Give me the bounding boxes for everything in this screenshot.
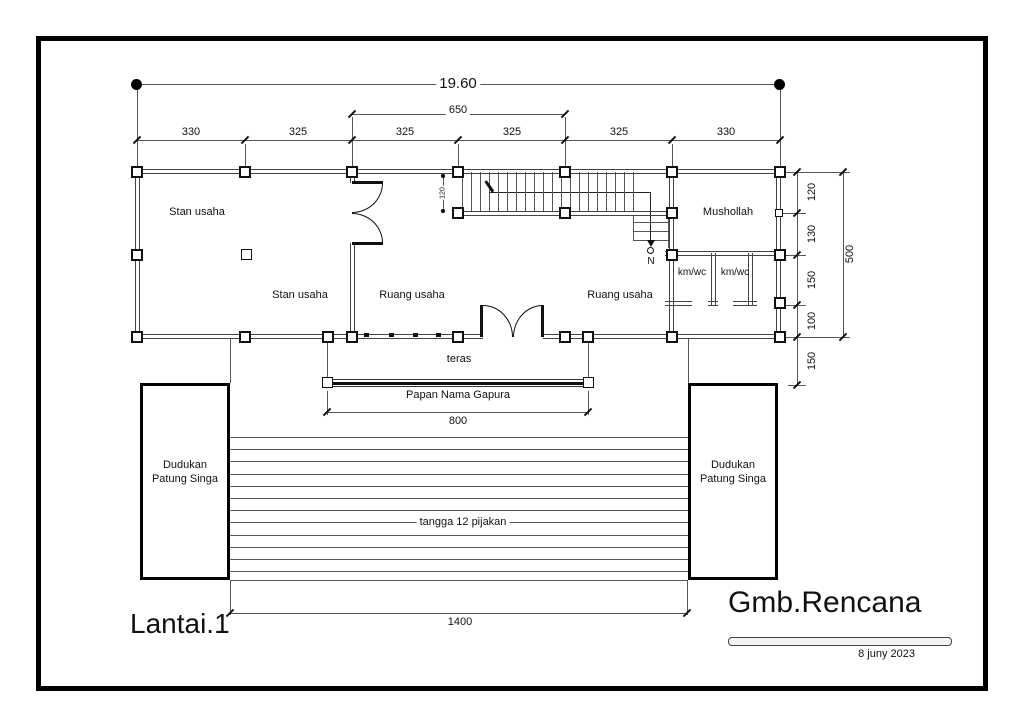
stair-tread-line [230,449,688,450]
dim-label-papan-width: 800 [449,415,467,427]
wall-stub [413,333,418,337]
extension-line [780,85,781,169]
stair-tread-line [230,559,688,560]
column [774,297,786,309]
papan-nama-bar [327,379,588,387]
column [131,249,143,261]
dim-label-right-total: 500 [844,243,856,265]
dim-endpoint-dot [441,209,445,213]
dim-label-650: 650 [446,104,470,116]
door-leaf [352,242,383,245]
room-label-teras: teras [447,353,471,365]
stair-direction-ring [647,247,654,254]
door-leaf [480,305,483,337]
wall-segment [350,243,355,339]
room-label-kmwc: km/wc [721,267,749,278]
dudukan-label-line2: Patung Singa [688,472,778,486]
stair-tread-line [230,580,688,581]
stair-tread-line [552,172,553,211]
dim-label-right: 150 [806,269,818,291]
column [346,166,358,178]
dim-label-segment: 325 [503,126,521,138]
column [346,331,358,343]
wall-segment [733,301,757,306]
floor-label: Lantai.1 [130,608,230,640]
column [774,249,786,261]
wall-stub [364,333,369,337]
stair-tread-line [230,474,688,475]
stair-tread-line [534,172,535,211]
dim-label-overall-width: 19.60 [436,75,480,92]
dim-label-segment: 325 [610,126,628,138]
teras-edge-line [327,339,328,379]
stair-tread-line [230,571,688,572]
wall-segment [137,334,483,339]
papan-post [583,377,594,388]
dim-label-right: 150 [806,350,818,372]
dim-line-1400 [230,613,687,614]
stair-travel-line [650,192,651,240]
dudukan-label-line2: Patung Singa [140,472,230,486]
stair-tread-line [230,461,688,462]
column [666,207,678,219]
wall-stub [436,333,441,337]
column [241,249,252,260]
drawing-date: 8 juny 2023 [760,648,915,660]
dim-endpoint-dot [774,79,785,90]
stair-step-line [633,215,634,240]
room-label-stan-usaha: Stan usaha [169,206,225,218]
column [559,331,571,343]
dim-label-bottom-stairs: 1400 [448,616,472,628]
column [559,166,571,178]
column [239,331,251,343]
stair-tread-line [543,172,544,211]
column [774,331,786,343]
door-leaf [541,305,544,337]
stair-tread-line [480,172,481,211]
room-label-kmwc: km/wc [678,267,706,278]
column [582,331,594,343]
wall-segment [665,251,780,256]
stair-tread-line [498,172,499,211]
dudukan-label-right: Dudukan Patung Singa [688,458,778,486]
wall-segment [748,253,753,305]
extension-line [352,117,353,170]
dim-label-segment: 325 [396,126,414,138]
wall-segment [543,334,780,339]
dim-line-800 [327,412,588,413]
teras-edge-line [230,339,231,383]
column [131,166,143,178]
stair-tread-line [633,172,634,211]
dim-endpoint-dot [131,79,142,90]
wall-segment [665,301,692,306]
column [559,207,571,219]
title-underline-bar [728,637,952,646]
dim-label-right: 130 [806,223,818,245]
dim-label-right: 120 [806,181,818,203]
room-label-stan-usaha: Stan usaha [272,289,328,301]
window-marker [775,209,783,217]
stair-tread-line [230,535,688,536]
stair-tread-line [615,172,616,211]
wall-stub [389,333,394,337]
drawing-title: Gmb.Rencana [728,586,921,620]
papan-post [322,377,333,388]
stair-tread-line [230,547,688,548]
stair-tread-line [588,172,589,211]
papan-nama-bar-core [327,382,588,385]
dim-label-segment: 330 [717,126,735,138]
stair-tread-line [579,172,580,211]
stair-tread-line [525,172,526,211]
stair-direction-arrow [647,240,655,247]
column [452,166,464,178]
dim-label-right: 100 [806,310,818,332]
stair-tread-line [471,172,472,211]
extension-line [565,117,566,170]
stair-tread-line [597,172,598,211]
annotation-papan-nama: Papan Nama Gapura [406,389,510,401]
stair-tread-line [489,172,490,211]
dim-label-segment: 325 [289,126,307,138]
room-label-ruang-usaha: Ruang usaha [379,289,444,301]
column [666,331,678,343]
column [666,249,678,261]
teras-edge-line [588,339,589,379]
stair-direction-label: N [647,256,654,267]
dudukan-label-line1: Dudukan [140,458,230,472]
wall-segment [711,253,716,305]
stair-tread-line [507,172,508,211]
door-leaf [352,181,383,184]
drawing-sheet: 19.60 650 330 325 325 325 325 330 120 13… [0,0,1024,728]
extension-line [137,85,138,169]
stair-tread-line [230,437,688,438]
dim-label-stair-width: 120 [440,186,447,200]
column [666,166,678,178]
stair-tread-line [624,172,625,211]
stair-tread-line [230,498,688,499]
stair-tread-line [230,510,688,511]
dim-chain-line [797,172,798,385]
column [131,331,143,343]
column [774,166,786,178]
column [322,331,334,343]
stair-tread-line [230,486,688,487]
dudukan-label-left: Dudukan Patung Singa [140,458,230,486]
column [452,331,464,343]
room-label-mushollah: Mushollah [703,206,753,218]
column [452,207,464,219]
column [239,166,251,178]
dim-endpoint-dot [441,174,445,178]
dudukan-label-line1: Dudukan [688,458,778,472]
dim-label-segment: 330 [182,126,200,138]
stair-tread-line [606,172,607,211]
room-label-ruang-usaha: Ruang usaha [587,289,652,301]
stair-tread-line [516,172,517,211]
annotation-tangga: tangga 12 pijakan [417,516,510,528]
teras-edge-line [688,339,689,383]
